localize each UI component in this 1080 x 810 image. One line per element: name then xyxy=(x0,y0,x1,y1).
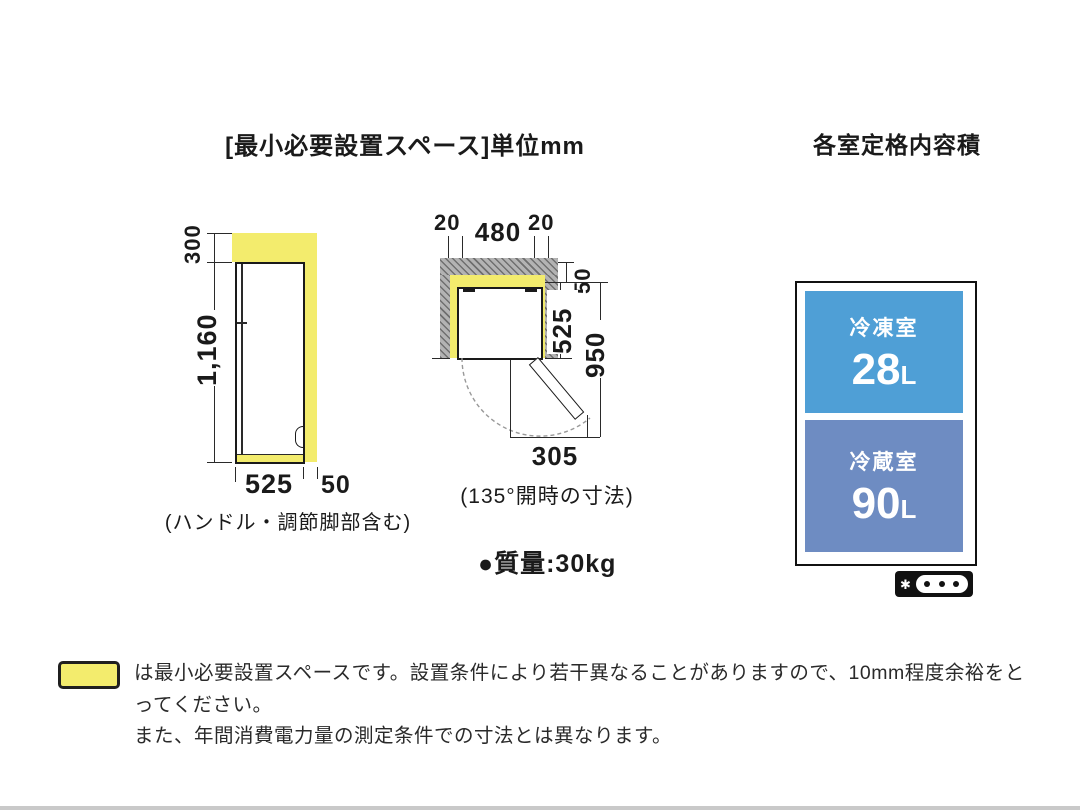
refrigerator-unit: L xyxy=(901,494,917,524)
refrigerator-box: 冷蔵室 90L xyxy=(805,420,963,552)
capacity-diagram: 冷凍室 28L 冷蔵室 90L ✱ xyxy=(795,281,980,606)
dot xyxy=(939,581,945,587)
fridge-base-line xyxy=(237,454,303,455)
dim-950-label: 950 xyxy=(580,320,611,378)
carousel-dots xyxy=(916,575,968,593)
fridge-foot-bump xyxy=(295,426,303,448)
legend: は最小必要設置スペースです。設置条件により若干異なることがありますので、10mm… xyxy=(58,658,1038,753)
dim-480-label: 480 xyxy=(462,217,534,248)
side-view-top-clearance xyxy=(232,233,317,262)
fridge-door-line xyxy=(241,264,243,462)
top-view-diagram: 20 20 480 50 525 xyxy=(432,208,692,523)
hinge-mark-right xyxy=(525,289,537,292)
dim-tick xyxy=(587,415,588,437)
dim-300-label: 300 xyxy=(180,228,206,264)
dim-tick xyxy=(548,236,549,258)
dim-tick xyxy=(462,236,463,258)
dim-tick xyxy=(303,467,304,479)
dim-tick xyxy=(534,236,535,258)
legend-yellow-swatch xyxy=(58,661,120,689)
refrigerator-label: 冷蔵室 xyxy=(850,446,919,476)
dim-tick xyxy=(545,282,608,283)
dim-line xyxy=(510,437,600,438)
dim-50-rear-label: 50 xyxy=(570,254,596,294)
dim-20-left-label: 20 xyxy=(434,210,460,236)
dot xyxy=(953,581,959,587)
page-title: [最小必要設置スペース]単位mm xyxy=(180,126,630,161)
dim-tick xyxy=(207,262,232,263)
dim-tick xyxy=(207,462,232,463)
dim-tick xyxy=(317,467,318,479)
legend-line-2: また、年間消費電力量の測定条件での寸法とは異なります。 xyxy=(134,721,1038,753)
freezer-box: 冷凍室 28L xyxy=(805,291,963,413)
fridge-base-band xyxy=(237,455,303,462)
dim-tick xyxy=(510,360,511,437)
dim-525-label: 525 xyxy=(547,290,578,354)
fridge-side-outline xyxy=(235,262,305,464)
wall-top xyxy=(440,258,558,275)
image-carousel-indicator: ✱ xyxy=(895,571,973,597)
dim-tick xyxy=(448,236,449,258)
side-view-caption: (ハンドル・調節脚部含む) xyxy=(143,506,433,535)
snowflake-icon: ✱ xyxy=(900,578,911,591)
top-view-rear-clearance xyxy=(450,275,545,287)
dim-tick xyxy=(207,233,232,234)
freezer-value: 28L xyxy=(852,348,917,392)
dim-1160-label: 1,160 xyxy=(192,310,223,386)
dim-525-label: 525 xyxy=(235,469,303,500)
dim-305-label: 305 xyxy=(510,441,600,472)
diagram-page: [最小必要設置スペース]単位mm 各室定格内容積 300 1,160 525 5… xyxy=(0,0,1080,810)
legend-line-1: は最小必要設置スペースです。設置条件により若干異なることがありますので、10mm… xyxy=(134,658,1038,721)
dim-tick xyxy=(545,358,572,359)
dim-50-label: 50 xyxy=(321,471,351,500)
refrigerator-value: 90L xyxy=(852,482,917,526)
side-view-diagram: 300 1,160 525 50 (ハンドル・調節脚部含む) xyxy=(178,226,418,546)
fridge-plan-outline xyxy=(457,287,543,360)
fridge-handle-mark xyxy=(237,322,247,324)
bottom-edge-bar xyxy=(0,806,1080,810)
freezer-label: 冷凍室 xyxy=(850,312,919,342)
capacity-title: 各室定格内容積 xyxy=(772,126,1022,160)
dim-line xyxy=(566,262,567,282)
open-door xyxy=(529,357,584,420)
weight-text: ●質量:30kg xyxy=(478,544,616,580)
wall-left xyxy=(440,275,450,358)
side-view-rear-clearance xyxy=(303,262,317,462)
hinge-mark-left xyxy=(463,289,475,292)
freezer-unit: L xyxy=(901,360,917,390)
wall-left-foot-tick xyxy=(432,358,450,359)
legend-text: は最小必要設置スペースです。設置条件により若干異なることがありますので、10mm… xyxy=(134,658,1038,753)
dot xyxy=(924,581,930,587)
top-view-caption: (135°開時の寸法) xyxy=(437,480,657,510)
dim-line xyxy=(214,233,215,262)
top-view-left-clearance xyxy=(450,287,457,358)
door-swing-arc xyxy=(432,208,692,523)
